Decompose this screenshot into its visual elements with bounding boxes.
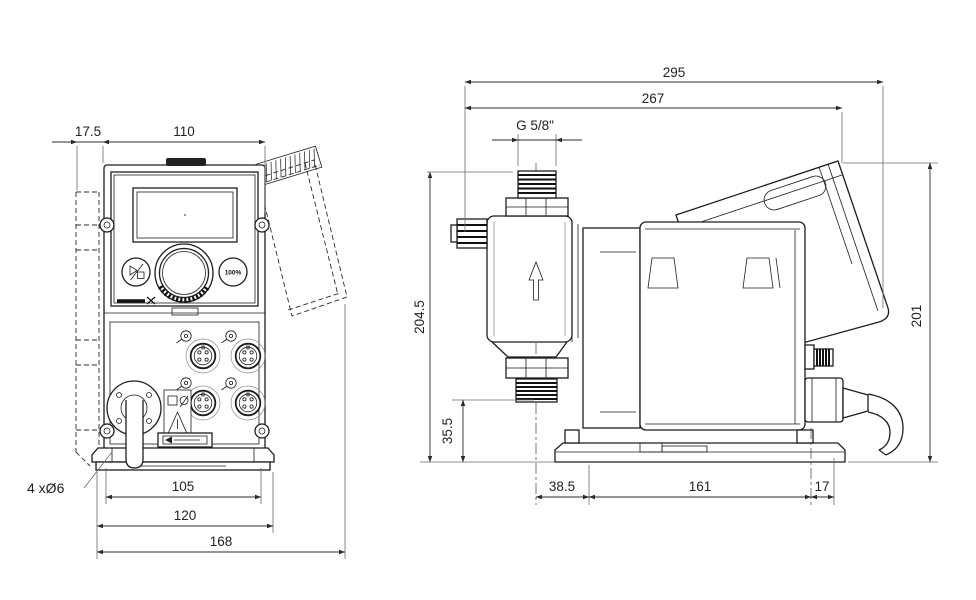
side-base-plate bbox=[555, 430, 845, 462]
svg-text:17: 17 bbox=[814, 479, 829, 494]
svg-text:161: 161 bbox=[689, 479, 712, 494]
dimension-connection-thread: G 5/8" bbox=[492, 118, 582, 166]
signal-connector-4[interactable] bbox=[231, 386, 265, 420]
dimension-inlet-height: 35.5 bbox=[440, 400, 534, 462]
outlet-fitting bbox=[506, 171, 568, 216]
dimension-base-length: 161 bbox=[589, 428, 811, 505]
dimension-hole-span: 105 bbox=[106, 468, 261, 504]
svg-text:G 5/8": G 5/8" bbox=[516, 118, 554, 133]
prime-button[interactable]: 100% bbox=[219, 258, 247, 286]
svg-text:110: 110 bbox=[173, 124, 195, 139]
svg-text:105: 105 bbox=[172, 479, 195, 494]
dosing-head bbox=[451, 171, 578, 402]
dimension-head-offset: 38.5 bbox=[536, 465, 589, 505]
control-panel: 100% bbox=[111, 172, 258, 306]
svg-text:267: 267 bbox=[642, 91, 665, 106]
motor-housing bbox=[583, 222, 805, 430]
display-pixel bbox=[184, 214, 186, 216]
front-base-plate bbox=[92, 448, 274, 470]
svg-text:168: 168 bbox=[210, 534, 233, 549]
side-view: 295 267 G 5/8" 204.5 35.5 bbox=[412, 65, 938, 505]
svg-text:201: 201 bbox=[909, 305, 924, 328]
dimension-rear-offset: 17 bbox=[811, 458, 834, 505]
dimension-front-offset: 17.5 bbox=[52, 124, 103, 190]
wall-plate-hidden-outline bbox=[76, 192, 99, 466]
click-wheel[interactable] bbox=[155, 244, 213, 302]
signal-connector-2[interactable] bbox=[231, 339, 265, 373]
svg-text:4 xØ6: 4 xØ6 bbox=[27, 480, 65, 496]
dosing-pump-dimension-drawing: 100% bbox=[0, 0, 976, 600]
housing-adapter bbox=[583, 228, 640, 428]
svg-text:295: 295 bbox=[663, 65, 686, 80]
signal-connector-1[interactable] bbox=[186, 339, 220, 373]
svg-text:17.5: 17.5 bbox=[75, 124, 101, 139]
svg-text:120: 120 bbox=[174, 508, 197, 523]
start-stop-button[interactable] bbox=[122, 258, 150, 286]
vent-valve bbox=[451, 219, 487, 248]
prime-button-label: 100% bbox=[225, 270, 242, 277]
svg-text:35.5: 35.5 bbox=[440, 418, 455, 444]
mains-plug bbox=[805, 345, 833, 369]
technical-drawing-page: 100% bbox=[0, 0, 976, 600]
front-view: 100% bbox=[27, 124, 347, 559]
tilted-mount-plate-edge bbox=[256, 146, 347, 316]
svg-text:204.5: 204.5 bbox=[412, 300, 427, 334]
svg-text:38.5: 38.5 bbox=[549, 479, 575, 494]
inlet-fitting bbox=[492, 342, 568, 402]
bottom-latch bbox=[158, 433, 212, 447]
power-cable-front bbox=[126, 400, 143, 468]
top-tab bbox=[166, 158, 206, 166]
